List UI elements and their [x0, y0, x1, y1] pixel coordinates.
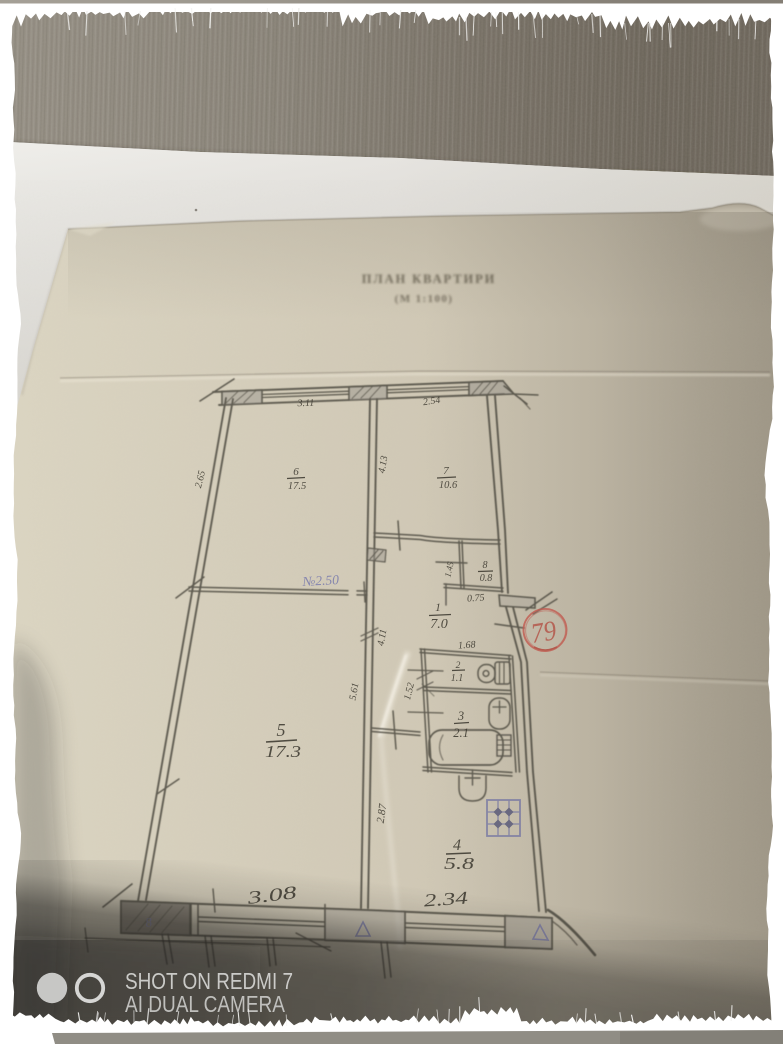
svg-text:3.11: 3.11	[296, 398, 314, 410]
svg-text:1: 1	[435, 602, 441, 614]
svg-text:2: 2	[456, 661, 461, 671]
svg-text:6: 6	[293, 466, 299, 478]
svg-text:7.0: 7.0	[430, 617, 448, 632]
svg-text:5: 5	[277, 720, 286, 740]
svg-text:17.5: 17.5	[288, 481, 306, 492]
svg-text:(М 1:100): (М 1:100)	[395, 293, 454, 305]
svg-text:1.68: 1.68	[458, 639, 476, 651]
svg-text:0.75: 0.75	[467, 592, 485, 604]
svg-text:0.8: 0.8	[480, 573, 493, 584]
svg-text:8: 8	[483, 560, 488, 571]
svg-text:№2.50: №2.50	[301, 572, 339, 589]
svg-text:17.3: 17.3	[265, 742, 301, 761]
svg-text:10.6: 10.6	[439, 480, 458, 491]
svg-text:ПЛАН КВАРТИРИ: ПЛАН КВАРТИРИ	[362, 272, 496, 286]
svg-text:3: 3	[457, 709, 464, 723]
svg-text:2.1: 2.1	[453, 726, 469, 740]
svg-text:1.1: 1.1	[451, 673, 464, 684]
svg-text:79: 79	[529, 614, 559, 649]
svg-text:7: 7	[443, 465, 449, 477]
svg-text:AI DUAL CAMERA: AI DUAL CAMERA	[125, 991, 286, 1017]
